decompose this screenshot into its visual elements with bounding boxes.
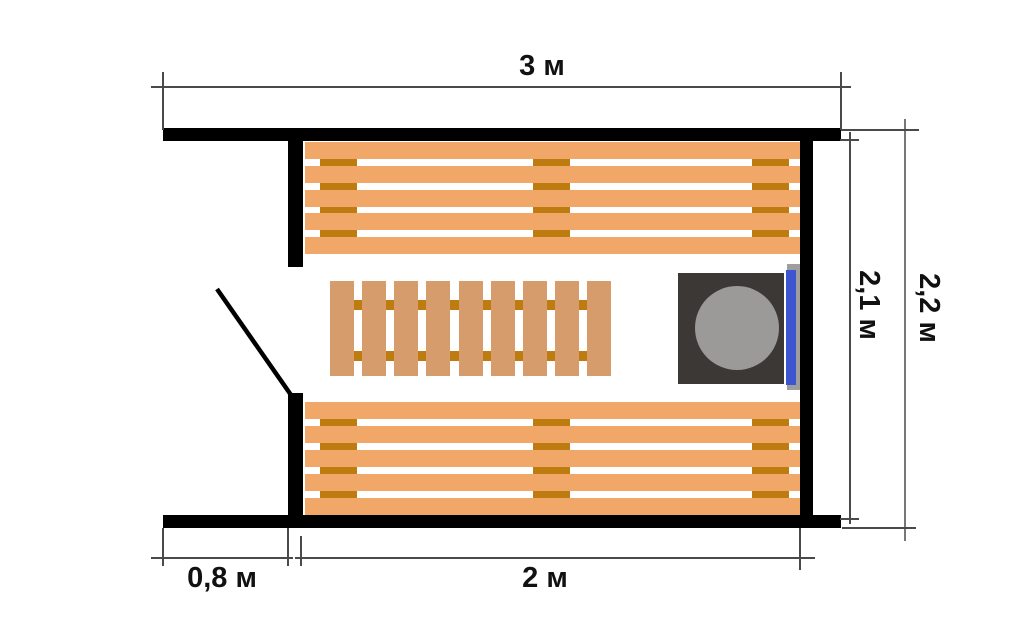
grate-plank [491, 281, 515, 376]
dimension-extension-outer-top [841, 129, 919, 131]
bench-plank [305, 474, 800, 491]
grate-plank [394, 281, 418, 376]
dimension-line-room-inner-depth [849, 132, 851, 524]
wall-left-lower-stub [288, 393, 303, 517]
bottom-bench [305, 402, 800, 515]
dimension-label-overall-depth: 2,2 м [913, 248, 945, 368]
dimension-label-overall-width: 3 м [482, 50, 602, 82]
dimension-line-overall-depth [904, 119, 906, 541]
stove-lid [695, 286, 779, 370]
dimension-extension-outer-bottom [842, 527, 916, 529]
wall-right [800, 128, 813, 528]
dimension-extension-top-left [162, 72, 164, 130]
bench-plank [305, 402, 800, 419]
floor-grate [330, 281, 611, 376]
dimension-tick-inner-bottom [840, 518, 859, 520]
heater-element [786, 270, 796, 385]
floor-plan-canvas: 3 м 2,1 м 2,2 м 0,8 м 2 м [0, 0, 1024, 622]
bench-plank [305, 237, 800, 254]
dimension-line-overall-width [151, 86, 851, 88]
wall-left-upper-stub [288, 139, 303, 267]
dimension-extension-bottom-right [799, 528, 801, 570]
grate-plank [523, 281, 547, 376]
dimension-label-porch-width: 0,8 м [162, 562, 282, 594]
wall-top [163, 128, 841, 141]
bench-plank [305, 213, 800, 230]
grate-plank [555, 281, 579, 376]
wall-bottom [163, 515, 841, 528]
dimension-tick-inner-top [840, 139, 859, 141]
dimension-extension-top-right [840, 72, 842, 130]
grate-plank [362, 281, 386, 376]
dimension-extension-bottom-mid-right [300, 536, 302, 566]
bench-plank [305, 426, 800, 443]
stove-body [678, 273, 784, 384]
top-bench [305, 142, 800, 254]
grate-plank [587, 281, 611, 376]
dimension-label-room-inner-depth: 2,1 м [853, 245, 885, 365]
bench-plank [305, 190, 800, 207]
dimension-line-porch-width [151, 557, 293, 559]
bench-plank [305, 166, 800, 183]
bench-plank [305, 498, 800, 515]
dimension-extension-bottom-far-left [162, 528, 164, 566]
bench-plank [305, 450, 800, 467]
grate-plank [330, 281, 354, 376]
dimension-label-room-width: 2 м [485, 562, 605, 594]
bench-plank [305, 142, 800, 159]
grate-plank [459, 281, 483, 376]
dimension-extension-bottom-mid-left [287, 528, 289, 566]
dimension-line-room-width [295, 557, 815, 559]
grate-plank [426, 281, 450, 376]
